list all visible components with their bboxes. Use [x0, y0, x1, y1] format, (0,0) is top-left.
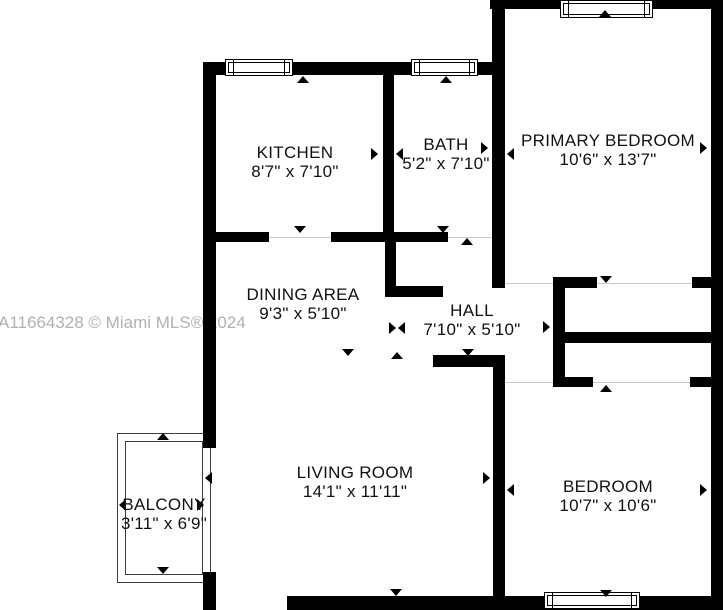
- kitchen-door-threshold: [269, 237, 331, 238]
- room-label-dining-area: DINING AREA 9'3" x 5'10": [247, 285, 360, 323]
- bath-window: [411, 59, 478, 76]
- room-label-living-room: LIVING ROOM 14'1" x 11'11": [297, 463, 414, 501]
- kitchen-window: [225, 59, 293, 76]
- wall-living-bedroom-divider: [493, 355, 505, 596]
- marker-bath-door2-icon: [461, 238, 473, 245]
- marker-primary-right-icon: [700, 142, 707, 154]
- wall-bedroom-top-right: [690, 377, 711, 387]
- bedroom-window: [544, 592, 640, 609]
- room-dimensions: 14'1" x 11'11": [297, 482, 414, 501]
- wall-bedroom-top-left: [553, 377, 593, 387]
- wall-primary-bottom-left: [553, 277, 597, 288]
- wall-closet-middle: [553, 332, 723, 343]
- room-name: PRIMARY BEDROOM: [521, 131, 695, 150]
- wall-bath-right: [492, 0, 505, 288]
- marker-primary-closet-icon: [600, 276, 612, 283]
- marker-hall-bottom2-icon: [462, 349, 474, 356]
- room-dimensions: 9'3" x 5'10": [247, 304, 360, 323]
- marker-dining-left-icon: [205, 320, 212, 332]
- room-name: BALCONY: [121, 495, 207, 514]
- floor-plan-page: { "watermark": "A11664328 © Miami MLS® 2…: [0, 0, 723, 610]
- marker-living-right-icon: [483, 472, 490, 484]
- marker-living-bottom-icon: [390, 589, 402, 596]
- wall-left-lower: [203, 572, 216, 610]
- marker-bedroom-left-icon: [507, 484, 514, 496]
- marker-balcony-top-icon: [157, 433, 169, 440]
- marker-bath-window-icon: [440, 76, 452, 83]
- room-label-kitchen: KITCHEN 8'7" x 7'10": [251, 143, 338, 181]
- room-label-balcony: BALCONY 3'11" x 6'9": [121, 495, 207, 533]
- marker-bedroom-window-icon: [600, 590, 612, 597]
- room-dimensions: 3'11" x 6'9": [121, 514, 207, 533]
- room-label-bath: BATH 5'2" x 7'10": [402, 135, 489, 173]
- primary-bedroom-door-threshold: [505, 283, 553, 284]
- marker-bedroom-closet-icon: [600, 385, 612, 392]
- marker-kitchen-door-icon: [294, 226, 306, 233]
- bedroom-closet-threshold: [593, 382, 690, 383]
- marker-bedroom-right-icon: [700, 484, 707, 496]
- marker-hall-bottom-icon: [391, 352, 403, 359]
- marker-hall-right-icon: [543, 321, 550, 333]
- room-label-bedroom: BEDROOM 10'7" x 10'6": [559, 477, 656, 515]
- room-name: KITCHEN: [251, 143, 338, 162]
- room-dimensions: 5'2" x 7'10": [402, 154, 489, 173]
- primary-closet-threshold: [597, 283, 692, 284]
- wall-hall-topleft: [385, 286, 443, 297]
- wall-kitchen-bottom-left: [203, 232, 269, 242]
- room-label-primary-bedroom: PRIMARY BEDROOM 10'6" x 13'7": [521, 131, 695, 169]
- marker-primary-window-icon: [599, 10, 611, 17]
- wall-left-upper: [203, 62, 216, 448]
- room-dimensions: 10'6" x 13'7": [521, 150, 695, 169]
- marker-hall-left-icon: [389, 322, 396, 334]
- marker-balcony-bottom-icon: [157, 567, 169, 574]
- wall-bottom-exterior: [287, 596, 723, 610]
- marker-bath-door-icon: [437, 226, 449, 233]
- wall-right-exterior: [711, 0, 723, 610]
- wall-kitchen-bath-divider: [383, 62, 394, 235]
- room-dimensions: 8'7" x 7'10": [251, 162, 338, 181]
- room-dimensions: 10'7" x 10'6": [559, 496, 656, 515]
- marker-kitchen-right-icon: [371, 148, 378, 160]
- marker-kitchen-door2-icon: [341, 235, 353, 242]
- room-dimensions: 7'10" x 5'10": [423, 320, 520, 339]
- room-label-hall: HALL 7'10" x 5'10": [423, 301, 520, 339]
- marker-dining-bottom-icon: [342, 349, 354, 356]
- marker-living-left-icon: [205, 472, 212, 484]
- room-name: HALL: [423, 301, 520, 320]
- wall-primary-bottom-right: [692, 277, 711, 288]
- room-name: DINING AREA: [247, 285, 360, 304]
- room-name: LIVING ROOM: [297, 463, 414, 482]
- marker-kitchen-window-icon: [297, 76, 309, 83]
- room-name: BEDROOM: [559, 477, 656, 496]
- marker-kitchen-left-icon: [205, 148, 212, 160]
- marker-primary-left-icon: [507, 148, 514, 160]
- marker-hall-left2-icon: [398, 322, 405, 334]
- bedroom-door-threshold: [505, 382, 553, 383]
- room-name: BATH: [402, 135, 489, 154]
